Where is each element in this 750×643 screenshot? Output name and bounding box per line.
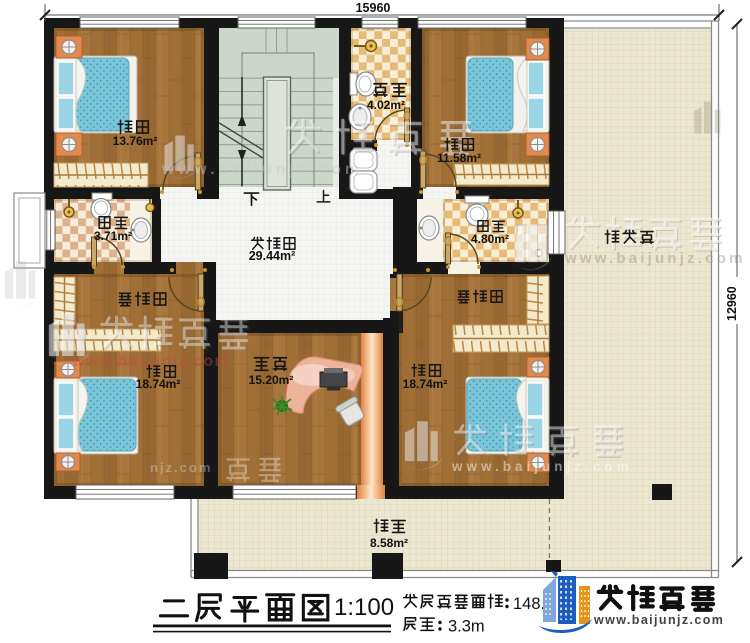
svg-text:3.3m: 3.3m xyxy=(448,618,485,636)
svg-text:12960: 12960 xyxy=(725,286,739,321)
svg-text:www.baijunjz.com: www.baijunjz.com xyxy=(593,613,724,627)
svg-text:njz.com: njz.com xyxy=(150,460,212,475)
svg-text:www.baijunjz.com: www.baijunjz.com xyxy=(161,161,363,178)
svg-text:29.44m²: 29.44m² xyxy=(249,249,296,263)
svg-text:8.58m²: 8.58m² xyxy=(370,536,408,550)
svg-text:15.20m²: 15.20m² xyxy=(249,373,294,387)
svg-text:4.80m²: 4.80m² xyxy=(471,232,509,246)
svg-text:www.baijunjz.com: www.baijunjz.com xyxy=(451,459,633,474)
svg-text:www.baijunjz.com: www.baijunjz.com xyxy=(564,250,746,267)
svg-text:15960: 15960 xyxy=(356,1,391,15)
svg-text:www.baijunjz.com: www.baijunjz.com xyxy=(71,353,230,370)
svg-text:13.76m²: 13.76m² xyxy=(113,134,158,148)
svg-text:3.71m²: 3.71m² xyxy=(94,229,132,243)
svg-text:18.74m²: 18.74m² xyxy=(403,377,448,391)
svg-text:11.58m²: 11.58m² xyxy=(437,151,481,165)
svg-text:4.02m²: 4.02m² xyxy=(367,98,405,112)
svg-text:18.74m²: 18.74m² xyxy=(136,377,181,391)
svg-text:1:100: 1:100 xyxy=(334,594,394,621)
